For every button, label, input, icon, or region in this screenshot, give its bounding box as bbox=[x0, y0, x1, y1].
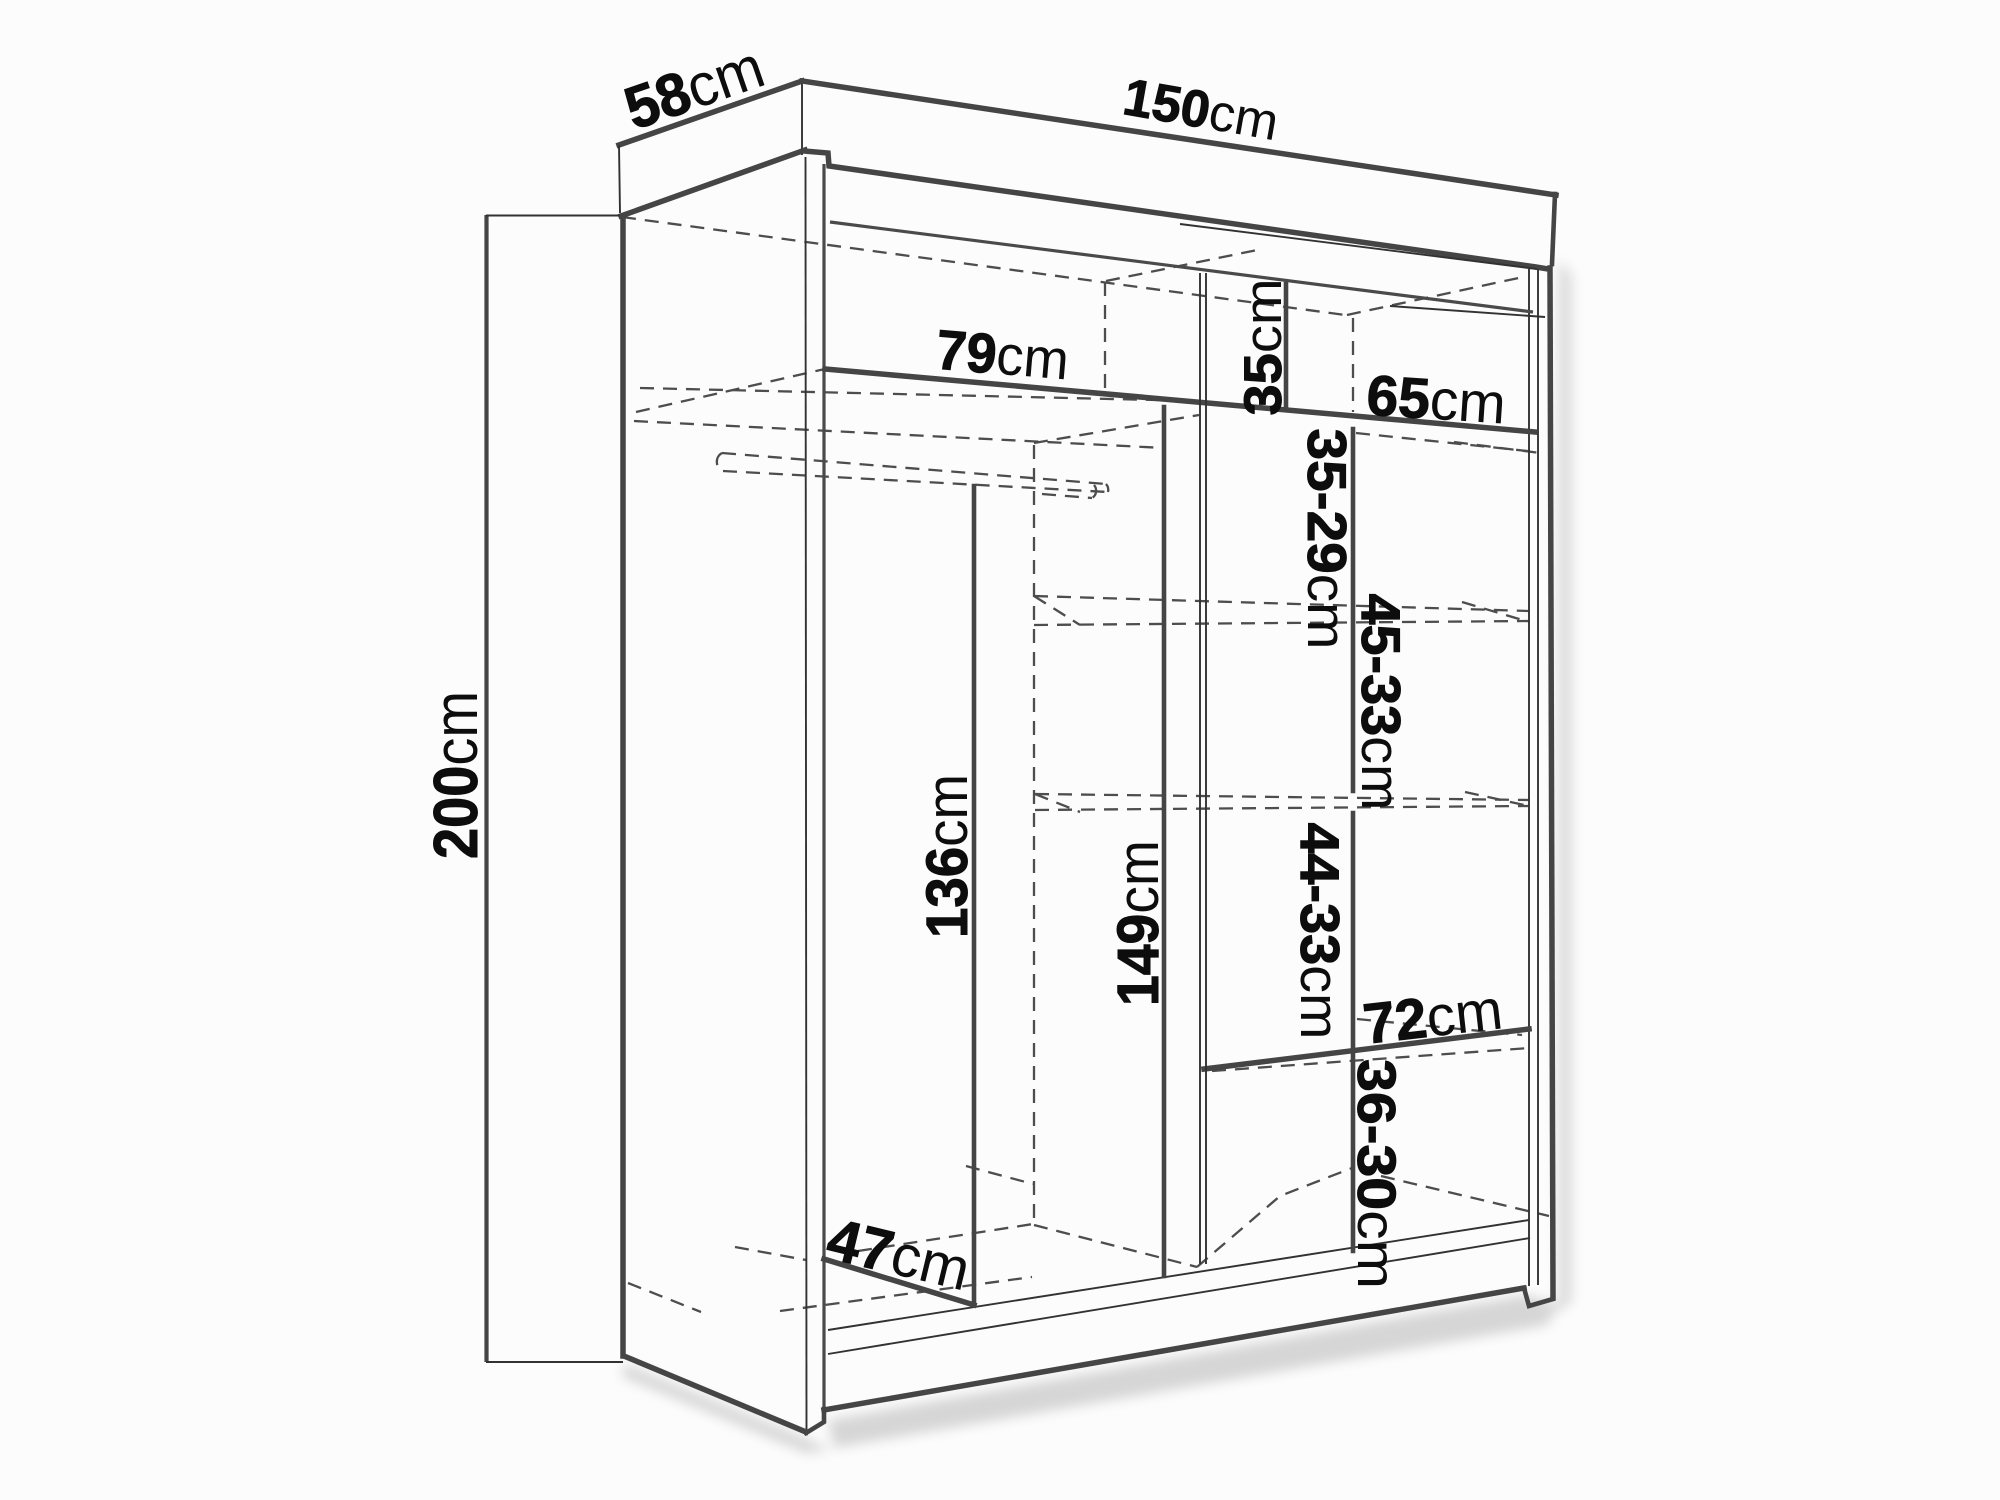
svg-text:65cm: 65cm bbox=[1365, 363, 1508, 436]
svg-text:36-30cm: 36-30cm bbox=[1346, 1059, 1406, 1289]
svg-text:149cm: 149cm bbox=[1106, 840, 1171, 1006]
svg-text:44-33cm: 44-33cm bbox=[1289, 823, 1351, 1040]
svg-text:45-33cm: 45-33cm bbox=[1350, 594, 1412, 811]
svg-text:136cm: 136cm bbox=[915, 774, 980, 938]
svg-text:200cm: 200cm bbox=[422, 691, 491, 859]
svg-text:35cm: 35cm bbox=[1234, 279, 1293, 416]
svg-text:35-29cm: 35-29cm bbox=[1296, 429, 1358, 650]
svg-text:79cm: 79cm bbox=[934, 318, 1072, 392]
